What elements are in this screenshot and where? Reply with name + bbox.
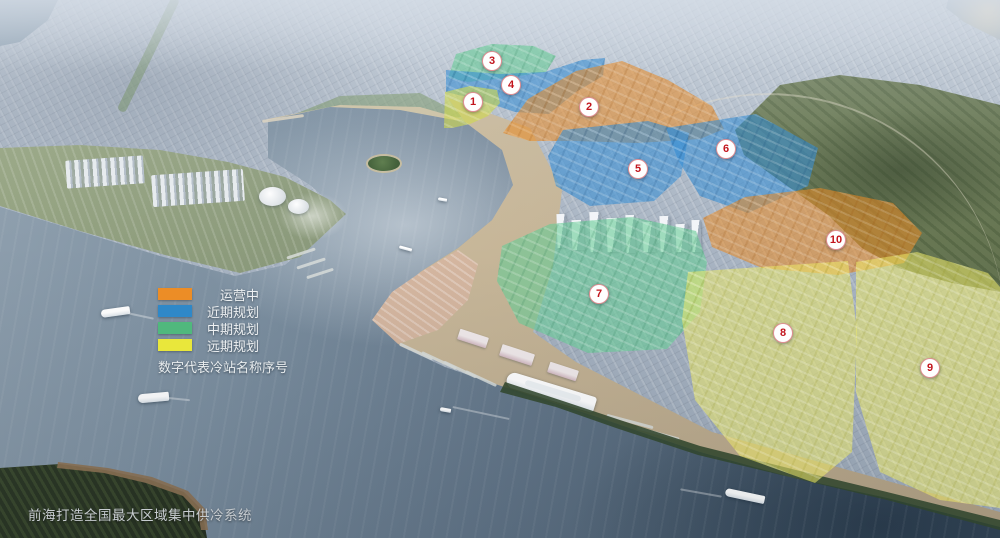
cooling-station-marker-6: 6 [716, 139, 736, 159]
legend: 运营中近期规划中期规划远期规划 数字代表冷站名称序号 [158, 288, 288, 376]
legend-item-operating: 运营中 [158, 288, 288, 300]
cooling-station-marker-8: 8 [773, 323, 793, 343]
cooling-station-marker-5: 5 [628, 159, 648, 179]
legend-swatch-mid-term [158, 322, 192, 334]
cooling-station-marker-4: 4 [501, 75, 521, 95]
cooling-station-marker-3: 3 [482, 51, 502, 71]
legend-rows: 运营中近期规划中期规划远期规划 [158, 288, 288, 351]
legend-swatch-operating [158, 288, 192, 300]
cooling-station-marker-9: 9 [920, 358, 940, 378]
cooling-station-marker-7: 7 [589, 284, 609, 304]
caption: 前海打造全国最大区域集中供冷系统 [28, 504, 252, 524]
cooling-station-marker-1: 1 [463, 92, 483, 112]
legend-item-near-term: 近期规划 [158, 305, 288, 317]
qianhai-district-cooling-map: 12345678910 运营中近期规划中期规划远期规划 数字代表冷站名称序号 前… [0, 0, 1000, 538]
legend-item-mid-term: 中期规划 [158, 322, 288, 334]
cooling-station-marker-10: 10 [826, 230, 846, 250]
legend-item-long-term: 远期规划 [158, 339, 288, 351]
legend-note: 数字代表冷站名称序号 [158, 357, 288, 376]
cooling-station-marker-2: 2 [579, 97, 599, 117]
legend-label-long-term: 远期规划 [205, 336, 259, 355]
legend-swatch-near-term [158, 305, 192, 317]
legend-swatch-long-term [158, 339, 192, 351]
